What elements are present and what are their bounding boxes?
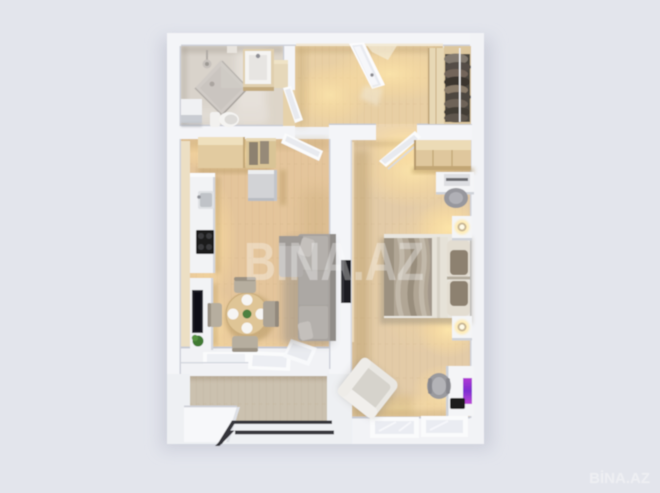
svg-text:BINA.AZ: BINA.AZ [244, 232, 424, 292]
svg-text:BİNA.AZ: BİNA.AZ [589, 470, 650, 487]
